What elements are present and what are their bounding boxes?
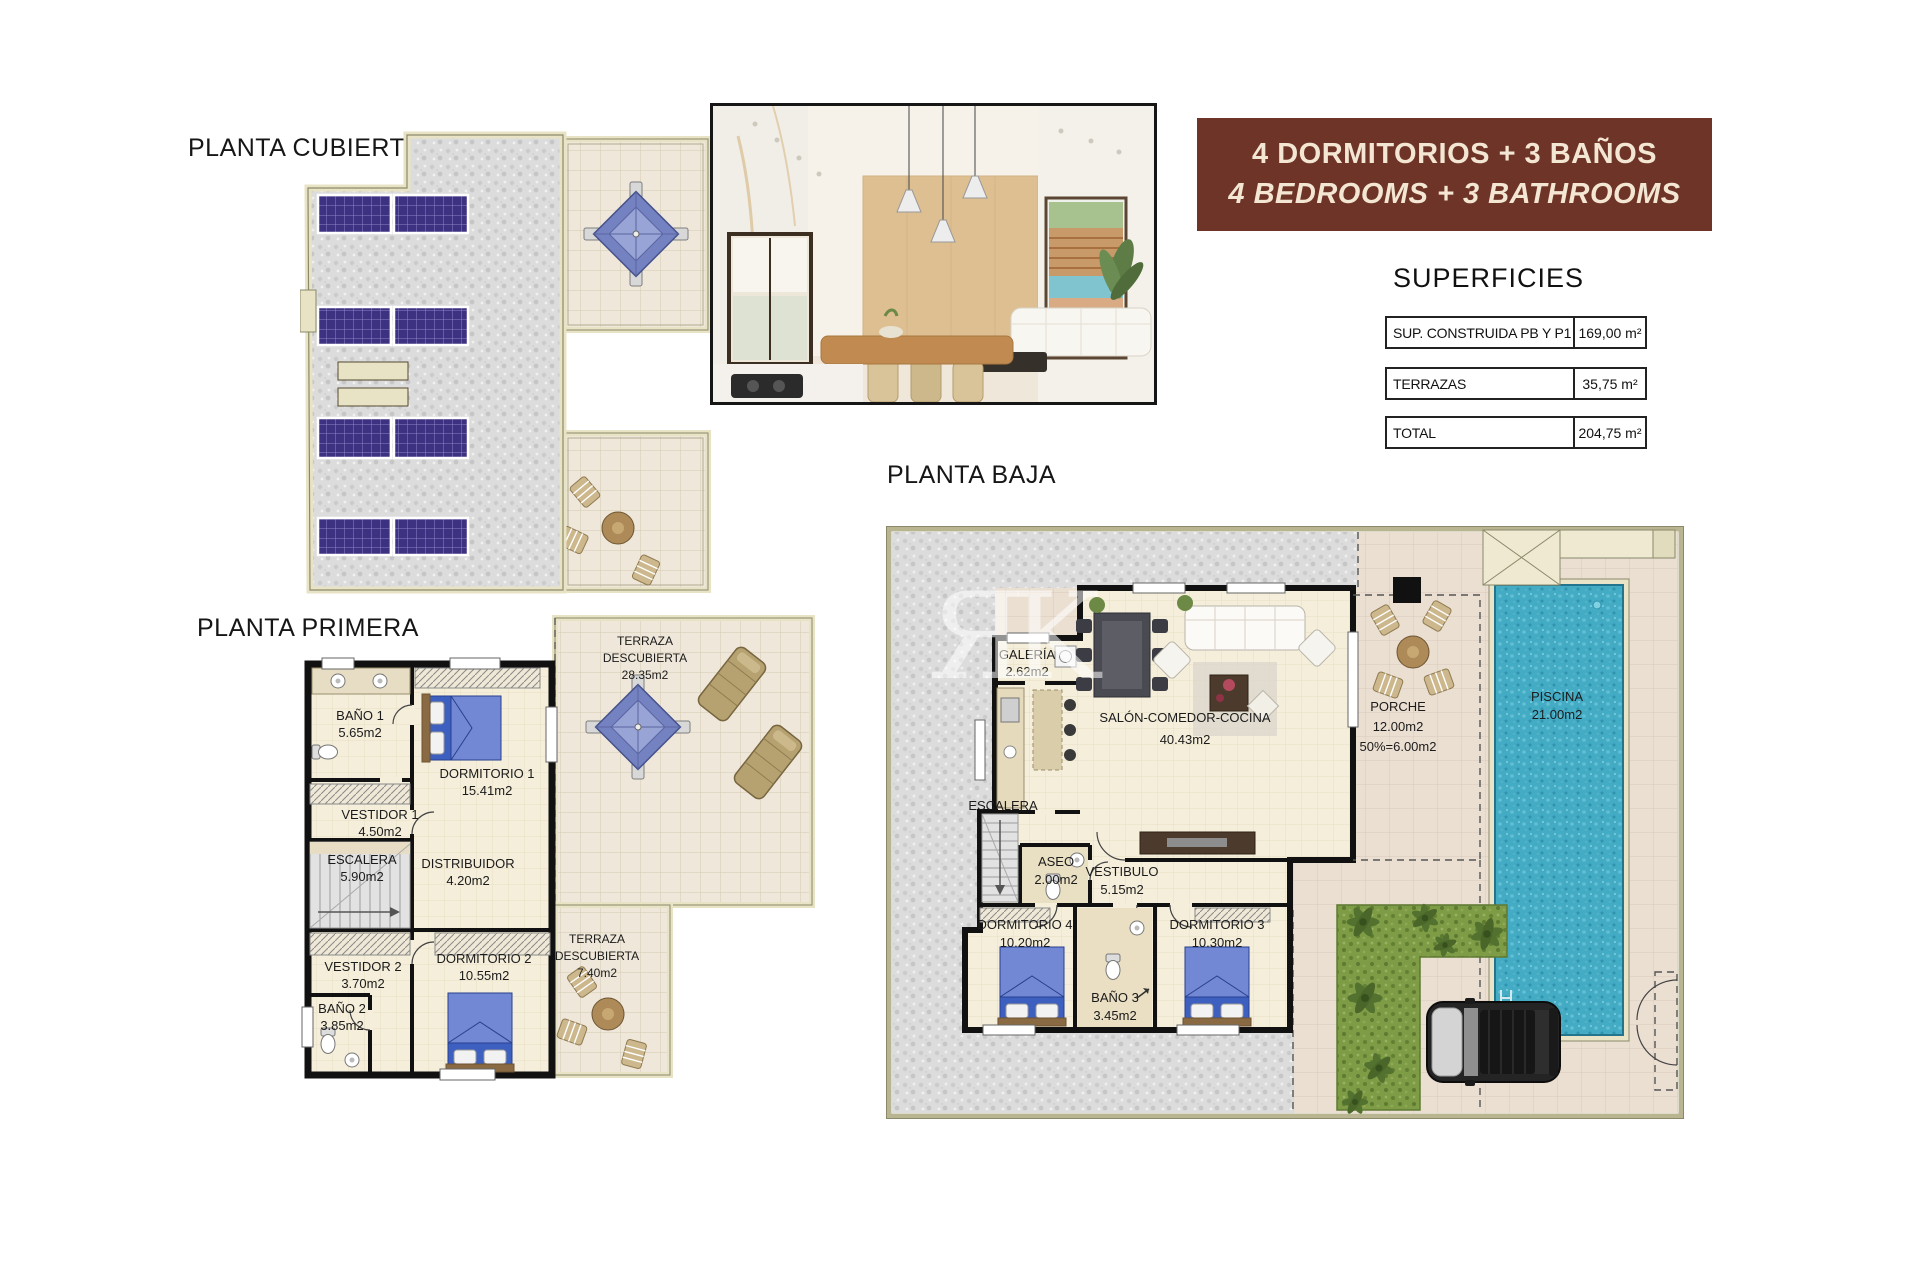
planta-cubierta-plan: [300, 130, 720, 596]
svg-text:28.35m2: 28.35m2: [622, 668, 669, 682]
svg-text:ESCALERA: ESCALERA: [968, 798, 1038, 813]
svg-text:PORCHE: PORCHE: [1370, 699, 1426, 714]
primera-house: BAÑO 1 5.65m2 VESTIDOR 1 4.50m2 DORMITOR…: [302, 658, 557, 1080]
svg-text:DESCUBIERTA: DESCUBIERTA: [555, 949, 639, 963]
svg-text:3.70m2: 3.70m2: [341, 976, 384, 991]
kitchen-island: [713, 364, 863, 402]
bedrooms-banner: 4 DORMITORIOS + 3 BAÑOS 4 BEDROOMS + 3 B…: [1197, 118, 1712, 231]
svg-text:SALÓN-COMEDOR-COCINA: SALÓN-COMEDOR-COCINA: [1099, 710, 1271, 725]
primera-terraza-pequena: TERRAZA DESCUBIERTA 7.40m2: [555, 905, 670, 1075]
cubierta-terrace-top: [563, 139, 708, 330]
pool: PISCINA 21.00m2: [1489, 579, 1629, 1041]
baja-stairs: [982, 814, 1018, 902]
svg-text:7.40m2: 7.40m2: [577, 966, 617, 980]
svg-text:DORMITORIO 1: DORMITORIO 1: [439, 766, 534, 781]
row-label: TERRAZAS: [1387, 376, 1573, 392]
banner-line-en: 4 BEDROOMS + 3 BATHROOMS: [1228, 178, 1680, 211]
svg-text:15.41m2: 15.41m2: [462, 783, 513, 798]
cubierta-roof: [300, 135, 563, 590]
superficies-row-terrazas: TERRAZAS 35,75 m²: [1385, 367, 1647, 400]
bed-dormitorio1: [422, 694, 501, 762]
svg-text:10.20m2: 10.20m2: [1000, 935, 1051, 950]
svg-text:ESCALERA: ESCALERA: [327, 852, 397, 867]
svg-text:10.30m2: 10.30m2: [1192, 935, 1243, 950]
brochure-page: PLANTA CUBIERTA: [0, 0, 1920, 1280]
svg-text:ASEO: ASEO: [1038, 854, 1074, 869]
planta-baja-title: PLANTA BAJA: [887, 461, 1056, 490]
svg-text:VESTIDOR 2: VESTIDOR 2: [324, 959, 401, 974]
cubierta-terrace-bottom: [557, 433, 708, 590]
bed-dormitorio4: [998, 947, 1066, 1026]
svg-text:4.50m2: 4.50m2: [358, 824, 401, 839]
svg-text:DESCUBIERTA: DESCUBIERTA: [603, 651, 687, 665]
planta-primera-plan: TERRAZA DESCUBIERTA 28.35m2 TERRAZA DESC…: [300, 612, 815, 1082]
svg-text:BAÑO 2: BAÑO 2: [318, 1001, 366, 1016]
svg-text:5.90m2: 5.90m2: [340, 869, 383, 884]
car: [1427, 998, 1560, 1086]
svg-text:DISTRIBUIDOR: DISTRIBUIDOR: [421, 856, 514, 871]
banner-line-es: 4 DORMITORIOS + 3 BAÑOS: [1252, 138, 1657, 171]
svg-text:2.62m2: 2.62m2: [1005, 664, 1048, 679]
svg-text:4.20m2: 4.20m2: [446, 873, 489, 888]
bed-dormitorio2: [446, 993, 514, 1072]
bed-dormitorio3: [1183, 947, 1251, 1026]
svg-text:GALERÍA: GALERÍA: [999, 647, 1056, 662]
superficies-row-construida: SUP. CONSTRUIDA PB Y P1 169,00 m²: [1385, 316, 1647, 349]
svg-text:3.85m2: 3.85m2: [320, 1018, 363, 1033]
interior-photo-render: [713, 106, 1154, 402]
svg-text:10.55m2: 10.55m2: [459, 968, 510, 983]
svg-text:3.45m2: 3.45m2: [1093, 1008, 1136, 1023]
svg-text:BAÑO 3: BAÑO 3: [1091, 990, 1139, 1005]
svg-text:5.15m2: 5.15m2: [1100, 882, 1143, 897]
svg-text:VESTIBULO: VESTIBULO: [1086, 864, 1159, 879]
interior-photo: [710, 103, 1157, 405]
svg-text:2.00m2: 2.00m2: [1034, 872, 1077, 887]
primera-terraza-grande: TERRAZA DESCUBIERTA 28.35m2: [555, 618, 812, 905]
svg-text:12.00m2: 12.00m2: [1373, 719, 1424, 734]
superficies-title: SUPERFICIES: [1393, 263, 1584, 294]
row-label: SUP. CONSTRUIDA PB Y P1: [1387, 325, 1573, 341]
planta-baja-plan: PISCINA 21.00m2: [885, 520, 1685, 1120]
svg-text:5.65m2: 5.65m2: [338, 725, 381, 740]
svg-text:DORMITORIO 4: DORMITORIO 4: [977, 917, 1072, 932]
svg-text:PISCINA: PISCINA: [1531, 689, 1583, 704]
svg-text:TERRAZA: TERRAZA: [569, 932, 625, 946]
row-value: 35,75 m²: [1573, 369, 1645, 398]
svg-text:21.00m2: 21.00m2: [1532, 707, 1583, 722]
svg-text:40.43m2: 40.43m2: [1160, 732, 1211, 747]
svg-text:DORMITORIO 2: DORMITORIO 2: [436, 951, 531, 966]
svg-text:TERRAZA: TERRAZA: [617, 634, 673, 648]
row-value: 169,00 m²: [1573, 318, 1645, 347]
svg-text:VESTIDOR 1: VESTIDOR 1: [341, 807, 418, 822]
svg-text:DORMITORIO 3: DORMITORIO 3: [1169, 917, 1264, 932]
row-value: 204,75 m²: [1573, 418, 1645, 447]
svg-text:BAÑO 1: BAÑO 1: [336, 708, 384, 723]
superficies-row-total: TOTAL 204,75 m²: [1385, 416, 1647, 449]
row-label: TOTAL: [1387, 425, 1573, 441]
svg-text:50%=6.00m2: 50%=6.00m2: [1360, 739, 1437, 754]
